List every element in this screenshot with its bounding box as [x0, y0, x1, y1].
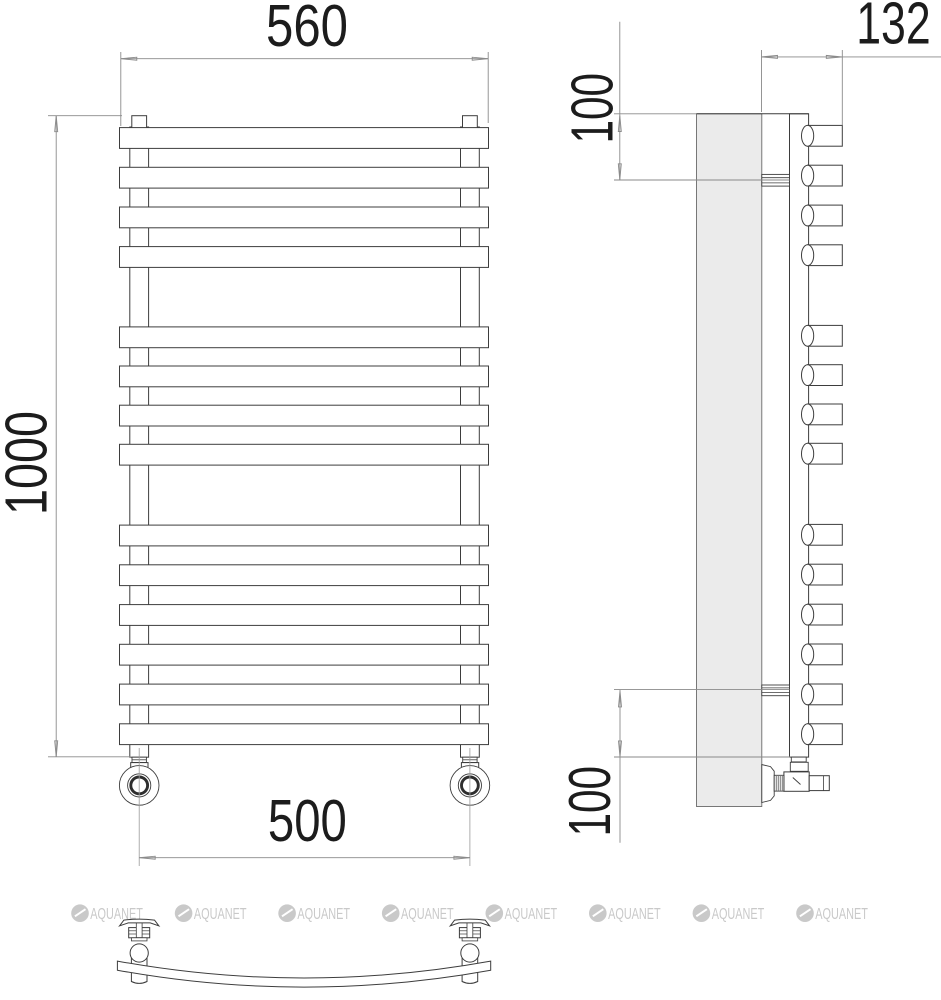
svg-text:AQUANET: AQUANET	[815, 906, 868, 923]
svg-text:AQUANET: AQUANET	[608, 906, 661, 923]
svg-text:500: 500	[268, 788, 347, 854]
svg-text:AQUANET: AQUANET	[194, 906, 247, 923]
svg-text:AQUANET: AQUANET	[401, 906, 454, 923]
svg-text:132: 132	[856, 0, 931, 57]
svg-text:100: 100	[557, 766, 623, 837]
svg-text:AQUANET: AQUANET	[505, 906, 558, 923]
svg-text:1000: 1000	[0, 411, 60, 515]
svg-text:560: 560	[266, 0, 348, 59]
svg-text:AQUANET: AQUANET	[297, 906, 350, 923]
svg-text:AQUANET: AQUANET	[712, 906, 765, 923]
svg-text:100: 100	[559, 73, 625, 144]
